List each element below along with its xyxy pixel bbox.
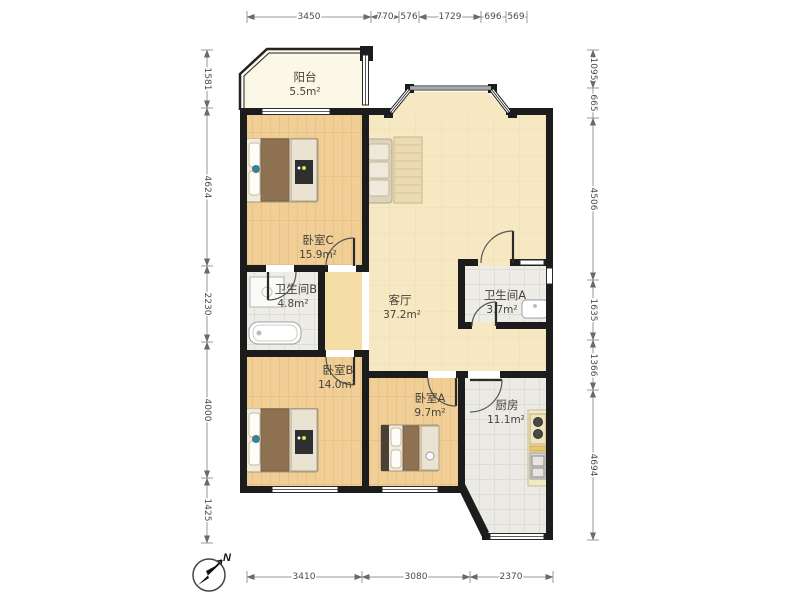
area-kitchen: 11.1m² bbox=[487, 414, 525, 426]
compass: N bbox=[193, 552, 232, 591]
window-balcony-wall bbox=[262, 109, 330, 115]
area-bathroom-a: 3.7m² bbox=[486, 304, 517, 316]
dim-top-1: 3450 bbox=[298, 12, 321, 22]
label-bedroom-c: 卧室C bbox=[302, 233, 333, 247]
floor-plan-canvas: 阳台 5.5m² 卧室C 15.9m² 客厅 37.2m² 卫生间B 4.8m²… bbox=[0, 0, 800, 600]
area-bathroom-b: 4.8m² bbox=[277, 298, 308, 310]
window-balcony-living bbox=[363, 55, 369, 105]
label-balcony: 阳台 bbox=[294, 70, 317, 84]
hall-floor bbox=[325, 272, 362, 350]
dim-right-6: 4694 bbox=[588, 454, 598, 477]
sink-bathroom-a bbox=[522, 300, 548, 318]
dim-top-4: 1729 bbox=[439, 12, 462, 22]
window-bedroom-b bbox=[272, 487, 338, 493]
window-bathroom-a bbox=[547, 268, 553, 284]
label-bedroom-a: 卧室A bbox=[415, 391, 446, 405]
dim-right-2: 665 bbox=[588, 94, 598, 111]
dim-left-2: 4624 bbox=[202, 176, 212, 199]
bed-bedroom-c bbox=[246, 138, 318, 202]
window-kitchen bbox=[490, 534, 544, 540]
dim-left-1: 1581 bbox=[202, 68, 212, 91]
area-bedroom-c: 15.9m² bbox=[299, 249, 337, 261]
dim-bottom-3: 2370 bbox=[500, 572, 523, 582]
dim-right-4: 1635 bbox=[588, 299, 598, 322]
dim-right-5: 1366 bbox=[588, 354, 598, 377]
dim-left-4: 4000 bbox=[202, 399, 212, 422]
dim-bottom-1: 3410 bbox=[293, 572, 316, 582]
dimension-chain-left: 1581 4624 2230 4000 1425 bbox=[201, 50, 213, 543]
label-kitchen: 厨房 bbox=[496, 398, 519, 412]
dim-top-2: 770 bbox=[376, 12, 393, 22]
label-bathroom-b: 卫生间B bbox=[275, 282, 317, 296]
window-bedroom-a bbox=[382, 487, 438, 493]
dimension-chain-right: 1095 665 4506 1635 1366 4694 bbox=[587, 50, 599, 540]
bed-bedroom-b bbox=[246, 408, 318, 472]
dim-left-5: 1425 bbox=[202, 499, 212, 522]
label-bedroom-b: 卧室B bbox=[323, 363, 354, 377]
dim-bottom-2: 3080 bbox=[405, 572, 428, 582]
kitchen-counter bbox=[528, 410, 548, 486]
bay-floor bbox=[390, 92, 510, 115]
bathtub-icon bbox=[249, 322, 301, 344]
dim-top-5: 696 bbox=[484, 12, 501, 22]
label-bathroom-a: 卫生间A bbox=[484, 288, 526, 302]
dim-right-1: 1095 bbox=[588, 58, 598, 81]
compass-north-label: N bbox=[223, 552, 232, 564]
label-living-room: 客厅 bbox=[389, 293, 412, 307]
sofa-icon bbox=[366, 137, 422, 203]
dim-left-3: 2230 bbox=[202, 293, 212, 316]
area-bedroom-b: 14.0m² bbox=[318, 379, 356, 391]
dimension-chain-bottom: 3410 3080 2370 bbox=[247, 571, 553, 583]
dim-right-3: 4506 bbox=[588, 188, 598, 211]
area-living-room: 37.2m² bbox=[383, 309, 421, 321]
bed-bedroom-a bbox=[381, 425, 439, 471]
dim-top-6: 569 bbox=[507, 12, 524, 22]
area-balcony: 5.5m² bbox=[289, 86, 320, 98]
dimension-chain-top: 3450 770 576 1729 696 569 bbox=[247, 11, 527, 23]
dim-top-3: 576 bbox=[400, 12, 417, 22]
window-entry-wall bbox=[520, 260, 544, 265]
area-bedroom-a: 9.7m² bbox=[414, 407, 445, 419]
